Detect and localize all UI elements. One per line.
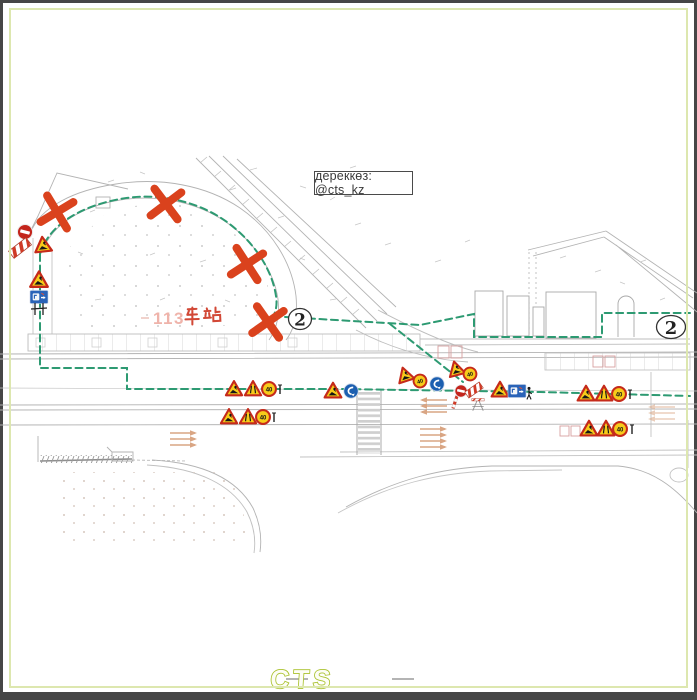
roadworks-sign <box>581 421 598 436</box>
road-narrows-sign <box>245 381 261 395</box>
cts-logo-text: CTS <box>269 664 335 694</box>
sign-cluster-intersection <box>395 359 531 410</box>
detour-direction-sign <box>430 377 444 391</box>
cts-logo: CTS <box>269 664 414 694</box>
speed-limit-sign <box>262 382 276 396</box>
retaining-wall-hatch <box>40 455 132 463</box>
source-label-text: дереккөз: @cts_kz <box>315 169 412 197</box>
barrier-chevron-board <box>9 238 32 259</box>
source-label-box: дереккөз: @cts_kz <box>314 171 413 195</box>
roadworks-sign <box>492 382 509 397</box>
sign-post <box>630 425 634 434</box>
sign-cluster-center-west-lower <box>221 409 276 424</box>
roadworks-sign <box>446 359 465 376</box>
speed-limit-sign <box>612 387 626 401</box>
speed-limit-sign <box>256 410 270 424</box>
speed-limit-sign <box>462 366 478 382</box>
road-narrows-sign <box>598 421 615 436</box>
road-narrows-sign <box>240 409 256 423</box>
sign-cluster-left <box>9 223 52 315</box>
station-number: 113 <box>153 309 185 328</box>
screenshot-frame: 40 <box>0 0 697 700</box>
stipple-area-bottom-left <box>58 472 252 545</box>
route-marker-left: 2 <box>289 309 312 331</box>
blue-info-sign <box>30 291 48 304</box>
roadworks-sign <box>578 386 595 401</box>
speed-limit-sign <box>412 373 428 389</box>
roadworks-sign <box>325 383 342 398</box>
barrier-chevron-board <box>465 382 484 398</box>
roadworks-sign <box>395 365 414 383</box>
crosswalk <box>357 390 381 455</box>
route-marker-right: 2 <box>657 316 686 340</box>
sign-cluster-east-lower <box>581 421 634 436</box>
buildings <box>475 291 634 338</box>
flagman-figure <box>527 387 531 399</box>
striped-post <box>452 396 459 409</box>
route-marker-right-number: 2 <box>665 318 678 339</box>
sign-cluster-east-upper <box>578 386 632 401</box>
sign-post <box>272 413 276 422</box>
roadworks-sign <box>221 409 237 423</box>
route-marker-left-number: 2 <box>294 311 306 331</box>
traffic-scheme-drawing: 40 <box>0 0 697 700</box>
detour-direction-sign <box>344 384 358 398</box>
speed-limit-sign <box>613 422 627 436</box>
blue-info-sign <box>508 385 526 398</box>
